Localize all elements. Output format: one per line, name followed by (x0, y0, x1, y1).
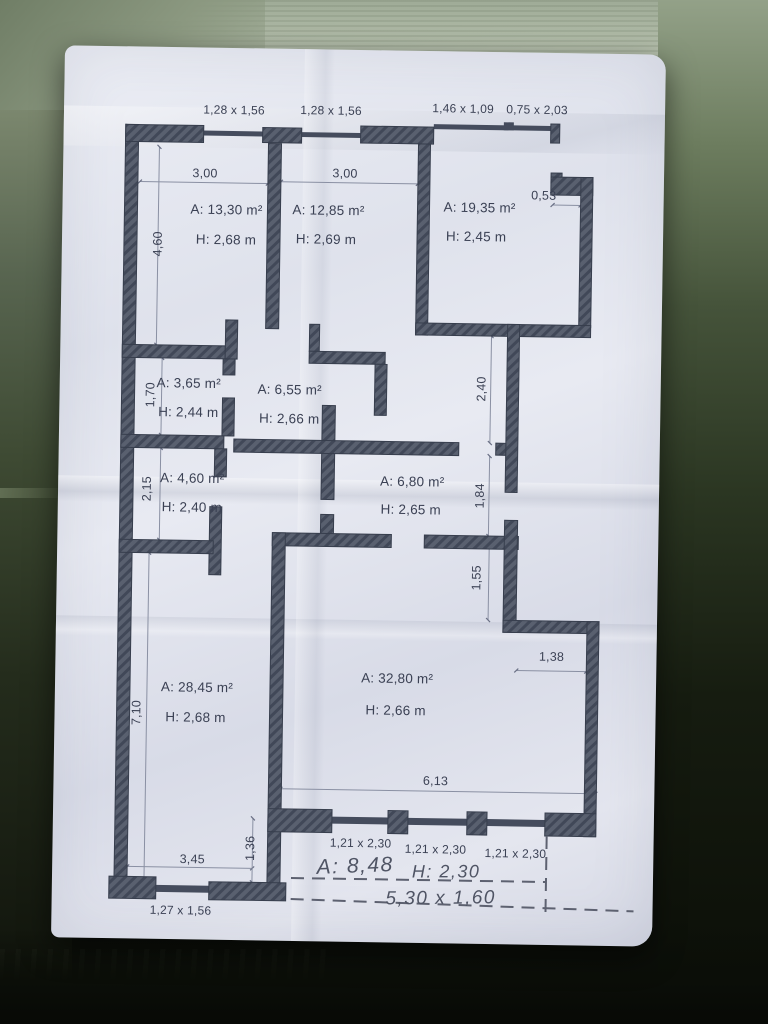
window-size-label: 1,46 x 1,09 (432, 102, 494, 115)
window-size-label: 1,27 x 1,56 (150, 904, 212, 917)
dimension-label: 1,70 (144, 382, 157, 407)
window-size-label: 0,75 x 2,03 (506, 103, 568, 116)
photo-scene: 1,28 x 1,56 1,28 x 1,56 1,46 x 1,09 0,75… (0, 0, 768, 1024)
dimension-label: 1,55 (470, 565, 483, 590)
window-size-label: 1,21 x 2,30 (330, 837, 392, 850)
room-area-label: A: 12,85 m² (292, 203, 364, 218)
window-size-label: 1,28 x 1,56 (203, 104, 265, 117)
room-height-label: H: 2,45 m (446, 230, 507, 244)
dimension-label: 3,00 (192, 167, 217, 180)
room-area-label: A: 28,45 m² (161, 680, 233, 695)
handwritten-area-note: A: 8,48 (316, 854, 394, 878)
room-height-label: H: 2,69 m (296, 232, 357, 246)
dimension-label: 2,40 (475, 376, 488, 401)
dimension-label: 4,60 (151, 231, 164, 256)
room-area-label: A: 6,55 m² (257, 383, 321, 398)
room-area-label: A: 4,60 m² (160, 471, 224, 486)
dimension-label: 1,38 (539, 651, 564, 664)
room-height-label: H: 2,44 m (158, 405, 219, 419)
room-height-label: H: 2,66 m (259, 412, 320, 426)
floor-plan: 1,28 x 1,56 1,28 x 1,56 1,46 x 1,09 0,75… (0, 0, 768, 1024)
paper-sheet: 1,28 x 1,56 1,28 x 1,56 1,46 x 1,09 0,75… (51, 45, 666, 946)
room-area-label: A: 32,80 m² (361, 671, 433, 686)
room-area-label: A: 19,35 m² (443, 201, 515, 216)
dimension-label: 0,53 (531, 189, 556, 202)
dimension-label: 7,10 (130, 700, 143, 725)
room-height-label: H: 2,68 m (196, 233, 257, 247)
room-area-label: A: 13,30 m² (190, 203, 262, 218)
dimension-label: 1,36 (244, 836, 257, 861)
room-height-label: H: 2,40 m (162, 500, 223, 514)
room-height-label: H: 2,66 m (365, 703, 426, 717)
dimension-label: 1,84 (474, 483, 487, 508)
dimension-label: 6,13 (423, 775, 448, 788)
room-area-label: A: 6,80 m² (380, 475, 444, 490)
window-size-label: 1,21 x 2,30 (405, 843, 467, 856)
room-height-label: H: 2,68 m (165, 710, 226, 724)
room-height-label: H: 2,65 m (381, 503, 442, 517)
dimension-label: 3,00 (332, 167, 357, 180)
dimension-label: 3,45 (180, 853, 205, 866)
window-size-label: 1,21 x 2,30 (485, 847, 547, 860)
handwritten-balcony-size-note: 5,30 x 1,60 (385, 888, 496, 908)
dimension-lines-layer (127, 147, 605, 888)
window-size-label: 1,28 x 1,56 (300, 104, 362, 117)
dimension-label: 2,15 (141, 476, 154, 501)
handwritten-height-note: H: 2,30 (412, 862, 481, 880)
room-area-label: A: 3,65 m² (157, 376, 221, 391)
